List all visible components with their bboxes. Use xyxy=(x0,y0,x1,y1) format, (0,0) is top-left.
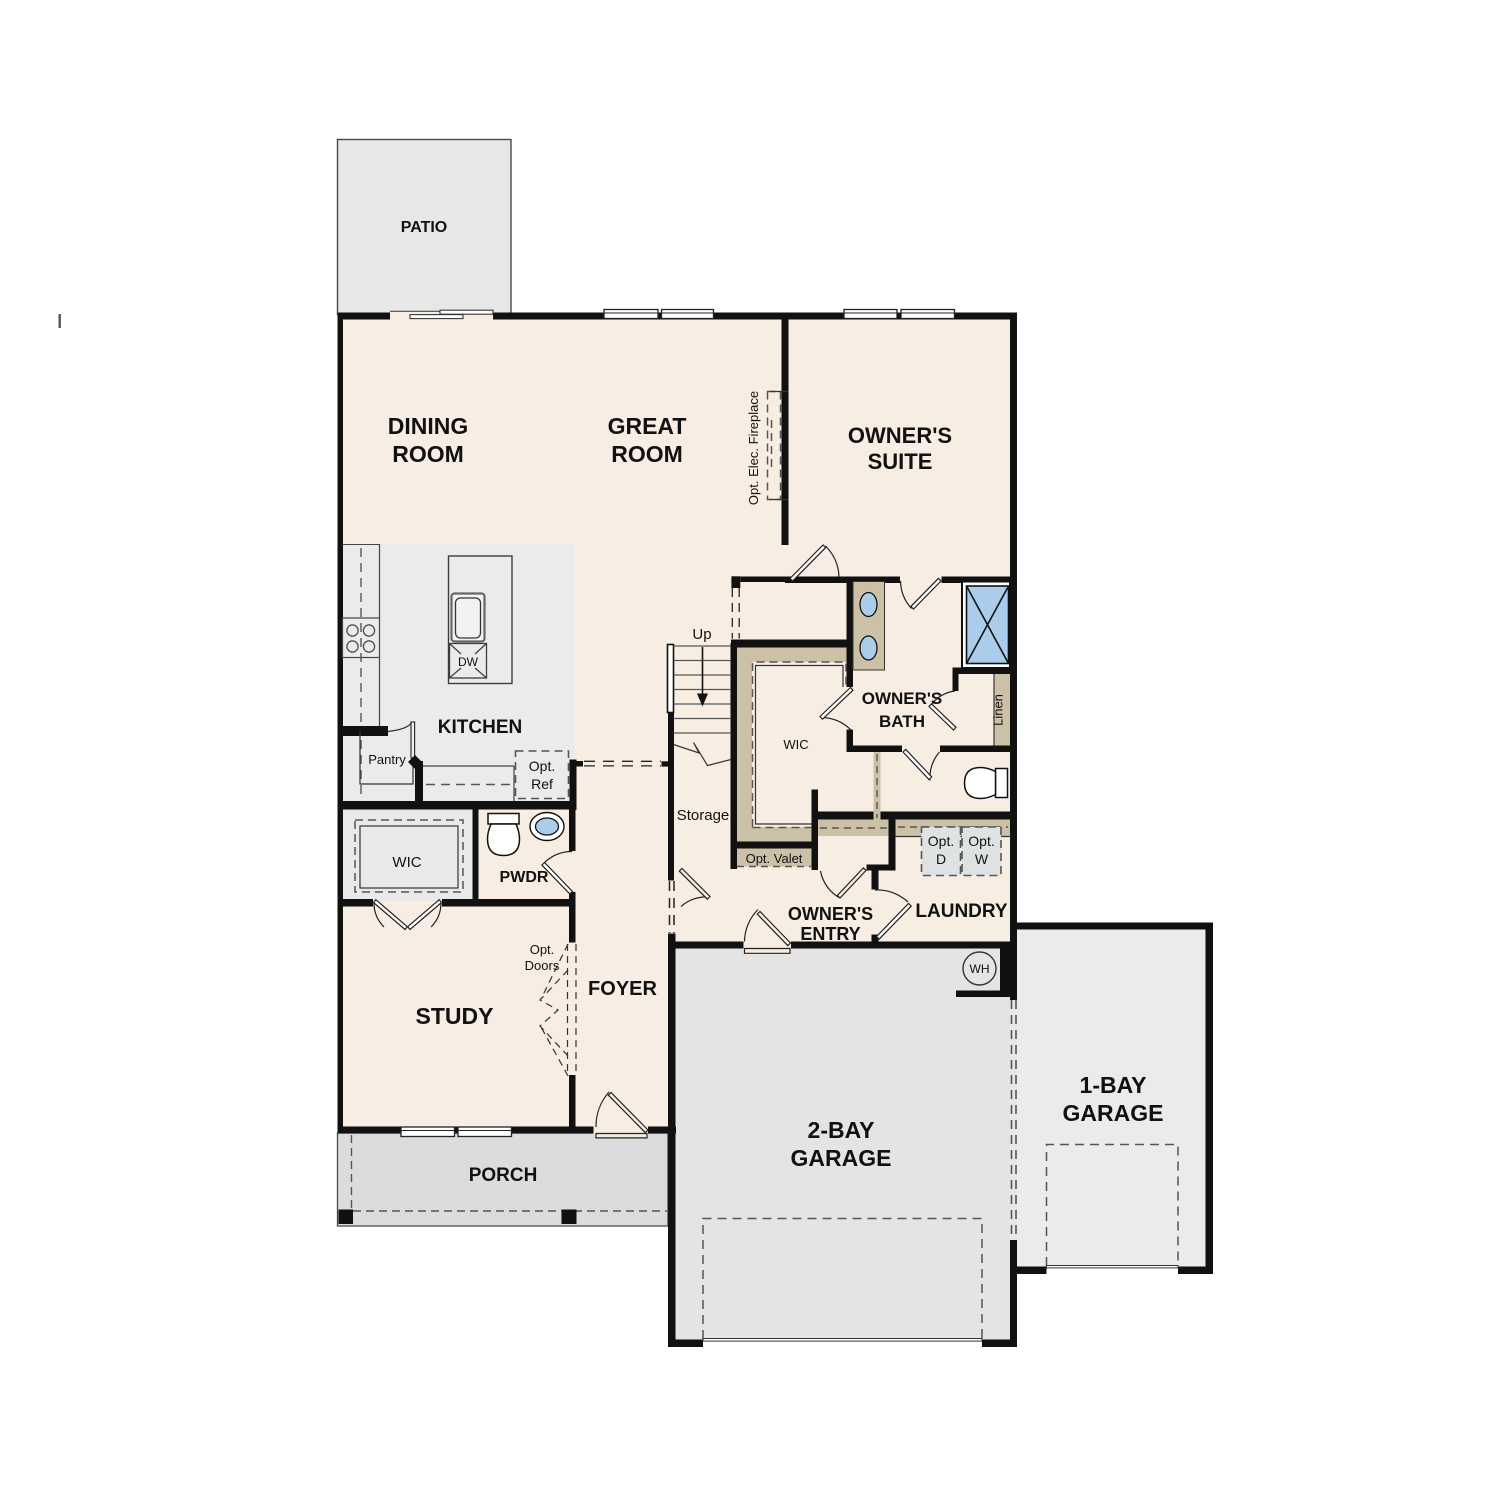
svg-text:2-BAY: 2-BAY xyxy=(808,1117,875,1143)
svg-text:Linen: Linen xyxy=(991,694,1006,726)
svg-text:FOYER: FOYER xyxy=(588,978,657,1000)
svg-text:WIC: WIC xyxy=(392,854,421,871)
svg-text:OWNER'S: OWNER'S xyxy=(788,904,873,924)
svg-text:Opt.: Opt. xyxy=(968,833,994,849)
svg-text:Ref: Ref xyxy=(531,776,553,792)
svg-text:GARAGE: GARAGE xyxy=(791,1145,892,1171)
svg-text:W: W xyxy=(975,851,989,867)
svg-text:D: D xyxy=(936,851,946,867)
svg-text:PWDR: PWDR xyxy=(500,869,549,886)
svg-text:ROOM: ROOM xyxy=(392,441,464,467)
svg-text:PATIO: PATIO xyxy=(401,219,448,236)
svg-text:PORCH: PORCH xyxy=(469,1165,538,1186)
svg-text:Storage: Storage xyxy=(677,807,730,824)
svg-text:1-BAY: 1-BAY xyxy=(1080,1072,1147,1098)
svg-text:KITCHEN: KITCHEN xyxy=(438,717,522,738)
svg-text:Pantry: Pantry xyxy=(368,752,406,767)
svg-text:BATH: BATH xyxy=(879,712,925,731)
svg-text:Opt.: Opt. xyxy=(928,833,954,849)
svg-text:DW: DW xyxy=(458,655,479,669)
svg-text:Opt.: Opt. xyxy=(529,758,555,774)
svg-text:STUDY: STUDY xyxy=(416,1003,494,1029)
svg-text:Doors: Doors xyxy=(525,958,560,973)
svg-text:Opt.: Opt. xyxy=(530,942,555,957)
svg-text:OWNER'S: OWNER'S xyxy=(862,689,943,708)
svg-text:Opt. Valet: Opt. Valet xyxy=(746,851,803,866)
svg-text:WH: WH xyxy=(970,962,990,976)
svg-text:OWNER'S: OWNER'S xyxy=(848,423,952,448)
svg-text:GREAT: GREAT xyxy=(608,413,687,439)
svg-text:Opt. Elec. Fireplace: Opt. Elec. Fireplace xyxy=(746,391,761,505)
svg-text:ENTRY: ENTRY xyxy=(800,924,860,944)
svg-text:DINING: DINING xyxy=(388,413,469,439)
svg-text:WIC: WIC xyxy=(783,737,808,752)
svg-text:Up: Up xyxy=(692,626,711,643)
svg-text:GARAGE: GARAGE xyxy=(1063,1100,1164,1126)
svg-text:SUITE: SUITE xyxy=(868,449,933,474)
svg-text:LAUNDRY: LAUNDRY xyxy=(915,901,1008,922)
svg-text:ROOM: ROOM xyxy=(611,441,683,467)
